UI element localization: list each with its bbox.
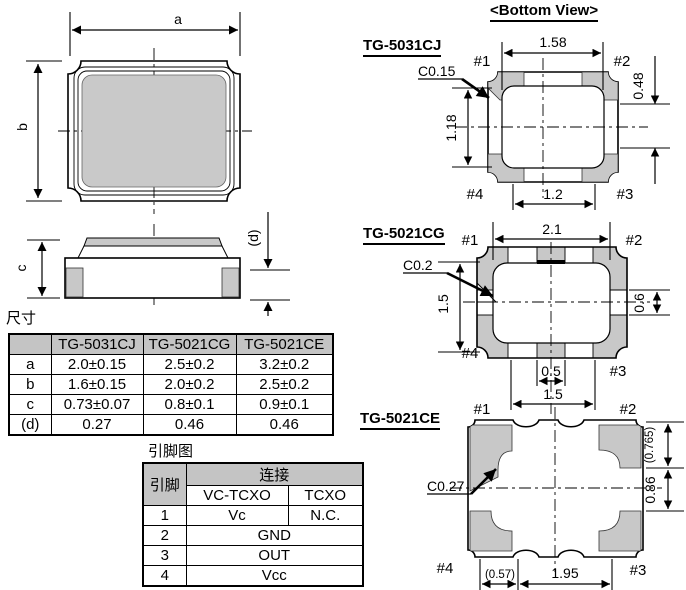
dimensions-table: TG-5031CJ TG-5021CG TG-5021CE a 2.0±0.15… — [8, 333, 334, 436]
pin-col-header: 引脚 — [143, 463, 186, 506]
dim-param: (d) — [9, 415, 51, 436]
outline-views-drawing: a b c (d) — [0, 0, 343, 318]
table-row: (d) 0.27 0.46 0.46 — [9, 415, 333, 436]
table-row: a 2.0±0.15 2.5±0.2 3.2±0.2 — [9, 355, 333, 375]
lid-surface — [82, 75, 226, 187]
table-row: 4 Vcc — [143, 566, 363, 587]
dim-cell: 0.73±0.07 — [51, 395, 143, 415]
connection-header: 连接 — [186, 463, 363, 486]
pin-conn-shared: GND — [186, 526, 363, 546]
dim-header-tg5021ce: TG-5021CE — [236, 334, 333, 355]
side-pad-left — [66, 268, 83, 297]
pin-conn-shared: Vcc — [186, 566, 363, 587]
subheader-vc-tcxo: VC-TCXO — [186, 486, 288, 506]
dim-label: 1.58 — [539, 34, 566, 50]
dim-table-title: 尺寸 — [6, 311, 36, 327]
table-row: b 1.6±0.15 2.0±0.2 2.5±0.2 — [9, 375, 333, 395]
top-view: a b — [14, 11, 252, 214]
dim-cell: 1.6±0.15 — [51, 375, 143, 395]
pin-label-4: #4 — [467, 186, 484, 203]
pad-1 — [470, 425, 512, 491]
side-view: c (d) — [13, 212, 290, 316]
dim-label-d: (d) — [245, 229, 261, 246]
pin-label-3: #3 — [610, 363, 627, 380]
dim-label-b: b — [14, 123, 30, 131]
dim-cell: 3.2±0.2 — [236, 355, 333, 375]
pin-conn-vc-tcxo: Vc — [186, 506, 288, 526]
dim-cell: 2.0±0.2 — [143, 375, 236, 395]
dim-param: a — [9, 355, 51, 375]
datasheet-page: a b c (d) 尺寸 — [0, 0, 686, 590]
pin-number: 4 — [143, 566, 186, 587]
dim-cell: 2.5±0.2 — [143, 355, 236, 375]
pad-4 — [470, 511, 512, 551]
dim-cell: 0.27 — [51, 415, 143, 436]
pin-number: 3 — [143, 546, 186, 566]
dim-param: c — [9, 395, 51, 415]
cavity-outline — [493, 263, 610, 343]
table-row: 2 GND — [143, 526, 363, 546]
chamfer-label: C0.15 — [418, 63, 456, 79]
dim-header-tg5031cj: TG-5031CJ — [51, 334, 143, 355]
pin-label-4: #4 — [437, 560, 454, 577]
dim-label: 0.5 — [541, 363, 561, 379]
table-row: TG-5031CJ TG-5021CG TG-5021CE — [9, 334, 333, 355]
side-pad-right — [222, 268, 239, 297]
dim-header-tg5021cg: TG-5021CG — [143, 334, 236, 355]
dim-cell: 0.46 — [236, 415, 333, 436]
table-row: 3 OUT — [143, 546, 363, 566]
pin-number: 2 — [143, 526, 186, 546]
dim-cell: 2.0±0.15 — [51, 355, 143, 375]
pin-label-2: #2 — [626, 232, 643, 249]
dim-label: 1.5 — [435, 294, 451, 314]
pin-label-1: #1 — [474, 401, 491, 418]
pin-connection-table: 引脚 连接 VC-TCXO TCXO 1 Vc N.C. 2 GND 3 OUT… — [142, 462, 364, 587]
pin-label-1: #1 — [462, 232, 479, 249]
pin-label-2: #2 — [620, 401, 637, 418]
bottom-views-drawing: 1.58 1.18 0.48 1.2 C0.15 #1 #2 #3 — [343, 0, 686, 590]
table-row: 引脚 连接 — [143, 463, 363, 486]
table-row: c 0.73±0.07 0.8±0.1 0.9±0.1 — [9, 395, 333, 415]
pin-number: 1 — [143, 506, 186, 526]
pin-label-3: #3 — [617, 186, 634, 203]
chamfer-label: C0.27 — [427, 478, 465, 494]
pad-2 — [599, 425, 641, 468]
bottom-view-tg5021ce: (0.765) 0.86 (0.57) 1.95 C0.27 #1 #2 #3 … — [427, 401, 684, 590]
chamfer-label: C0.2 — [403, 257, 433, 273]
dim-header-blank — [9, 334, 51, 355]
dim-param: b — [9, 375, 51, 395]
dim-label-a: a — [174, 11, 182, 27]
pin-label-3: #3 — [630, 562, 647, 579]
dim-label: 1.95 — [551, 565, 578, 581]
lid-cap — [84, 238, 222, 246]
bottom-view-tg5031cj: 1.58 1.18 0.48 1.2 C0.15 #1 #2 #3 — [418, 34, 670, 210]
dim-label: 0.48 — [630, 72, 646, 99]
pin-label-2: #2 — [614, 53, 631, 70]
dim-cell: 0.8±0.1 — [143, 395, 236, 415]
dim-label: (0.57) — [485, 569, 515, 581]
dim-label: 1.2 — [543, 186, 563, 202]
pin-label-1: #1 — [474, 53, 491, 70]
table-row: 1 Vc N.C. — [143, 506, 363, 526]
dim-label: 0.86 — [642, 476, 658, 503]
dim-label: 0.6 — [631, 293, 647, 313]
dim-cell: 2.5±0.2 — [236, 375, 333, 395]
dim-cell: 0.46 — [143, 415, 236, 436]
dim-label: 1.5 — [543, 386, 563, 402]
dim-label: 2.1 — [542, 221, 562, 237]
base-body — [65, 258, 240, 298]
pin-table-title: 引脚图 — [148, 444, 193, 460]
dim-cell: 0.9±0.1 — [236, 395, 333, 415]
dim-label: (0.765) — [644, 427, 656, 464]
dim-label: 1.18 — [443, 114, 459, 141]
lid-body — [78, 246, 228, 258]
bottom-view-tg5021cg: 2.1 1.5 0.6 0.5 1.5 C0.2 — [403, 221, 670, 414]
pin-conn-shared: OUT — [186, 546, 363, 566]
pin-label-4: #4 — [462, 345, 479, 362]
pad-3 — [599, 511, 641, 551]
dim-label-c: c — [13, 265, 29, 272]
